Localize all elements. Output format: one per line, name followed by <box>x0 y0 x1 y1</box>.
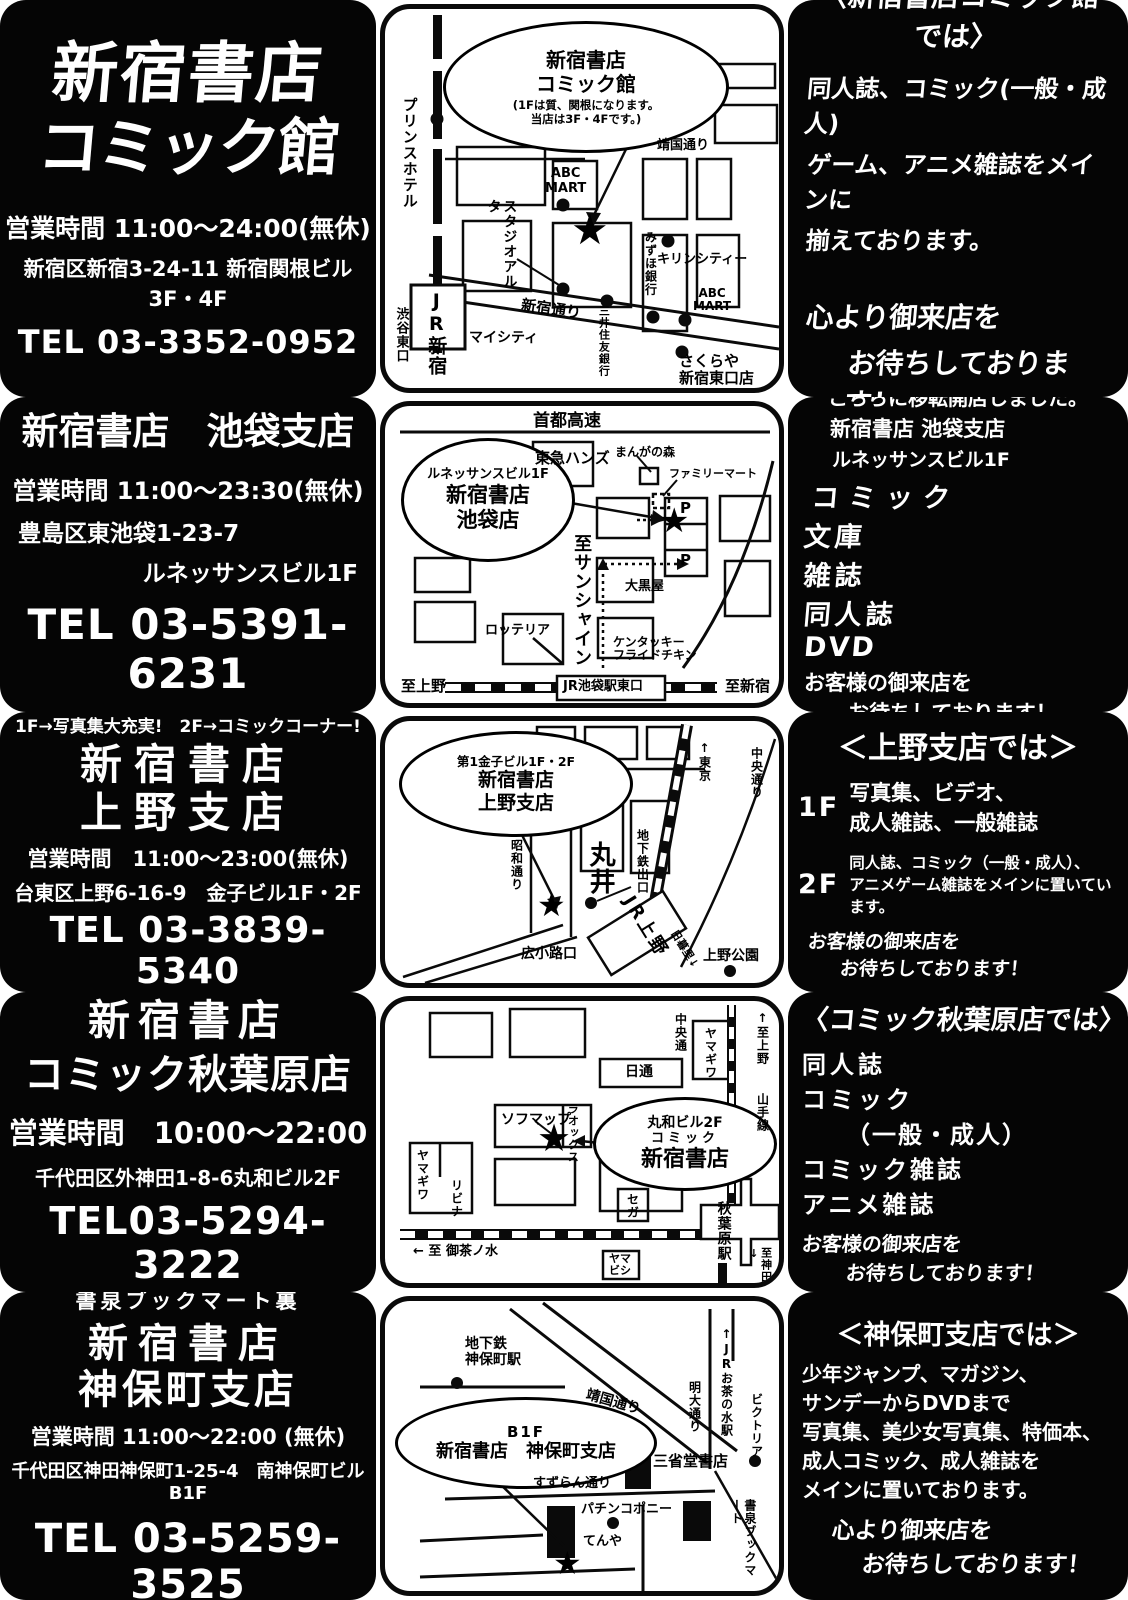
map-star-marker: ★ <box>659 504 689 538</box>
balloon-note1: (1Fは質、関根になります。 <box>513 99 659 113</box>
store-hours: 営業時間 11:00〜24:00(無休) <box>5 209 371 245</box>
map-balloon: 第1金子ビル1F・2F 新宿書店 上野支店 <box>399 731 633 837</box>
map-label-mycity: マイシティ <box>469 331 538 347</box>
balloon-store-name: 新宿書店 <box>446 483 530 508</box>
info-body-line: メインに置いております。 <box>802 1474 1039 1503</box>
store-title-line2: コミック館 <box>35 112 341 183</box>
info-floor1-label: 1F <box>798 792 839 823</box>
map-label-to-ochanomizu: ← 至 御茶ノ水 <box>413 1245 498 1260</box>
info-item: コミック <box>802 476 961 515</box>
info-body-line: アニメ雑誌 <box>802 1185 937 1220</box>
store-tel: TEL 03-5391-6231 <box>0 600 376 698</box>
map-label-jinbocho-subway-station: 地下鉄 神保町駅 <box>465 1337 521 1368</box>
store-title-line2: 神保町支店 <box>78 1367 298 1413</box>
map-label-kfc: ケンタッキー フライドチキン <box>613 636 697 663</box>
store-title-line1: 新宿書店 <box>88 1321 288 1367</box>
map-label-meidai-dori: 明大通り <box>687 1381 700 1433</box>
store-address2: ルネッサンスビル1F <box>143 554 376 588</box>
map-label-to-kanda: 至神田↓ <box>747 1247 772 1283</box>
balloon-store-name: 新宿書店 神保町支店 <box>436 1441 616 1463</box>
info-intro-line2: 新宿書店 池袋支店 <box>804 413 1005 443</box>
store-panel-comic-kan: 新宿書店 コミック館 営業時間 11:00〜24:00(無休) 新宿区新宿3-2… <box>0 0 376 397</box>
info-closing-line2: お待ちしております！ <box>801 1257 1046 1286</box>
map-jinbocho: 地下鉄 神保町駅 靖国通り B1F 新宿書店 神保町支店 すずらん通り パチンコ… <box>380 1296 784 1596</box>
info-panel-ikebukuro: こちらに移転開店しました。 新宿書店 池袋支店 ルネッサンスビル1F コミック … <box>788 397 1128 712</box>
store-hours: 営業時間 11:00〜23:00(無休) <box>28 843 349 873</box>
store-tel: TEL 03-5259-3525 <box>0 1516 376 1600</box>
map-ueno: 第1金子ビル1F・2F 新宿書店 上野支店 昭和通り 丸井 地下鉄出口 ↑東京 … <box>380 716 784 988</box>
store-topline: 1F→写真集大充実! 2F→コミックコーナー! <box>15 712 361 737</box>
map-label-studio-alta: スタジオアルタ <box>485 199 516 291</box>
store-panel-ikebukuro: 新宿書店 池袋支店 営業時間 11:00〜23:30(無休) 豊島区東池袋1-2… <box>0 397 376 712</box>
map-label-sanseido-books: 三省堂書店 <box>653 1453 728 1470</box>
store-title-line1: 新宿書店 <box>49 36 328 112</box>
info-panel-comic-kan: 〈新宿書店コミック館では〉 同人誌、コミック(一般・成人) ゲーム、アニメ雑誌を… <box>788 0 1128 397</box>
store-title-line1: 新宿書店 池袋支店 <box>22 411 355 454</box>
map-akihabara: 中央通 ヤマギワ ↑至上野 山手線 日通 ソフマップ ラオックス 丸和ビル2F … <box>380 996 784 1288</box>
map-label-ueno-park: 上野公園 <box>703 949 759 965</box>
map-column: 新宿書店 コミック館 (1Fは質、関根になります。 当店は3F・4Fです。) プ… <box>376 0 788 1600</box>
map-label-to-tokyo: ↑東京 <box>697 741 710 782</box>
info-body-line: 同人誌、コミック(一般・成人) <box>803 69 1113 139</box>
store-panel-jinbocho: 書泉ブックマート裏 新宿書店 神保町支店 営業時間 11:00〜22:00 (無… <box>0 1292 376 1600</box>
map-label-to-sunshine: 至サンシャイン <box>571 534 591 667</box>
map-label-yamabishi: ヤマ ビシ <box>609 1253 631 1278</box>
balloon-store-name2: コミック館 <box>536 72 636 96</box>
info-floor2-line1: 同人誌、コミック（一般・成人）、 <box>849 851 1118 873</box>
balloon-store-name: 新宿書店 <box>641 1147 729 1173</box>
map-label-yamanote-line: 山手線 <box>755 1093 768 1132</box>
map-balloon: 新宿書店 コミック館 (1Fは質、関根になります。 当店は3F・4Fです。) <box>443 21 729 153</box>
map-label-marui: 丸井 <box>585 841 614 895</box>
info-floor2-label: 2F <box>798 869 839 900</box>
map-label-akihabara-station: 秋葉原駅 <box>715 1201 731 1261</box>
balloon-building: ルネッサンスビル1F <box>427 467 549 483</box>
map-star-marker: ★ <box>571 209 609 251</box>
map-label-mizuho-bank: みずほ銀行 <box>643 231 656 296</box>
map-label-shuto-expressway: 首都高速 <box>533 412 601 431</box>
info-floor1-line2: 成人雑誌、一般雑誌 <box>849 807 1038 837</box>
info-body-line: ゲーム、アニメ雑誌をメインに <box>803 145 1113 215</box>
map-balloon: 丸和ビル2F コミック 新宿書店 <box>593 1097 777 1191</box>
map-ikebukuro: 首都高速 東急ハンズ まんがの森 ファミリーマート P P ルネッサンスビル1F… <box>380 401 784 708</box>
map-label-familymart: ファミリーマート <box>669 468 757 480</box>
balloon-branch: 上野支店 <box>478 792 554 815</box>
store-title-line2: コミック秋葉原店 <box>24 1052 352 1098</box>
map-label-prince-hotel: プリンスホテル <box>401 97 418 209</box>
store-tel: TEL 03-3352-0952 <box>18 323 358 361</box>
store-title-line1: 新宿書店 <box>80 741 296 789</box>
map-label-yasukuni-dori: 靖国通り <box>657 139 709 154</box>
balloon-branch: 池袋店 <box>457 508 520 533</box>
map-label-yamagiwa-1: ヤマギワ <box>703 1027 716 1079</box>
store-address: 新宿区新宿3-24-11 新宿関根ビル3F・4F <box>0 253 376 313</box>
map-shinjuku: 新宿書店 コミック館 (1Fは質、関根になります。 当店は3F・4Fです。) プ… <box>380 4 784 393</box>
map-label-jr-ochanomizu-station: ↑JRお茶の水駅 <box>719 1327 732 1437</box>
info-item: 雑誌 <box>802 554 867 593</box>
info-closing-line1: お客様の御来店を <box>797 927 961 954</box>
map-star-marker: ★ <box>553 1547 582 1579</box>
map-label-daikokuya: 大黒屋 <box>625 580 664 595</box>
map-label-kirin-city: キリンシティー <box>657 253 747 268</box>
info-body-line: コミック <box>802 1080 914 1115</box>
info-intro-line3: ルネッサンスビル1F <box>804 445 1010 472</box>
balloon-comic: コミック <box>651 1131 719 1147</box>
store-hours: 営業時間 11:00〜23:30(無休) <box>12 471 363 506</box>
ad-page: 新宿書店 コミック館 営業時間 11:00〜24:00(無休) 新宿区新宿3-2… <box>0 0 1128 1600</box>
info-floor1-line1: 写真集、ビデオ、 <box>849 777 1038 807</box>
store-title-line1: 新宿書店 <box>88 997 288 1045</box>
map-label-yamagiwa-2: ヤマギワ <box>415 1149 428 1201</box>
map-label-hirokoji-exit: 広小路口 <box>521 947 577 963</box>
info-item: 同人誌 <box>802 593 898 632</box>
store-address: 台東区上野6-16-9 金子ビル1F・2F <box>14 877 361 906</box>
info-body-line: 揃えております。 <box>804 221 995 256</box>
map-label-to-shinjuku: 至新宿 <box>725 678 770 695</box>
info-body-line: 写真集、美少女写真集、特価本、 <box>802 1416 1102 1445</box>
info-closing-line1: 心より御来店を <box>804 296 1003 336</box>
map-label-subway-exit: 地下鉄出口 <box>635 829 648 894</box>
info-heading: 〈新宿書店コミック館では〉 <box>803 0 1114 55</box>
info-body-line: コミック雑誌 <box>802 1150 964 1185</box>
map-label-jr-ikebukuro-station: JR池袋駅東口 <box>563 680 643 695</box>
map-label-pachinko-pony: パチンコポニー <box>581 1503 672 1518</box>
map-label-sega: セガ <box>625 1193 638 1219</box>
balloon-store-name: 新宿書店 <box>546 48 626 72</box>
store-column: 新宿書店 コミック館 営業時間 11:00〜24:00(無休) 新宿区新宿3-2… <box>0 0 376 1600</box>
map-label-livina: リビナ <box>449 1179 462 1218</box>
map-label-jr-shinjuku: JR新宿 <box>425 290 446 376</box>
map-label-abc-mart-1: ABC MART <box>545 167 586 196</box>
store-address: 千代田区神田神保町1-25-4 南神保町ビルB1F <box>0 1457 376 1504</box>
info-body-line: 同人誌 <box>802 1045 886 1080</box>
map-star-marker: ★ <box>537 1119 571 1157</box>
store-panel-ueno: 1F→写真集大充実! 2F→コミックコーナー! 新宿書店 上野支店 営業時間 1… <box>0 712 376 992</box>
map-label-sakuraya: さくらや 新宿東口店 <box>679 353 754 387</box>
balloon-note2: 当店は3F・4Fです。) <box>531 113 642 127</box>
map-label-to-ueno: 至上野 <box>401 678 446 695</box>
store-tel: TEL03-5294-3222 <box>0 1199 376 1287</box>
map-label-mitsui-sumitomo-bank: 三井住友銀行 <box>597 305 609 393</box>
map-label-parking-bottom: P <box>680 552 691 569</box>
balloon-floor: B1F <box>507 1423 545 1441</box>
map-label-lotteria: ロッテリア <box>485 624 550 639</box>
map-label-abc-mart-2: ABC MART <box>693 287 731 314</box>
info-panel-akihabara: 〈コミック秋葉原店では〉 同人誌 コミック （一般・成人） コミック雑誌 アニメ… <box>788 992 1128 1292</box>
info-intro-line1: こちらに移転開店しました。 <box>828 397 1088 411</box>
info-body-line: サンデーからDVDまで <box>802 1387 1011 1416</box>
info-body-line: （一般・成人） <box>802 1115 1028 1150</box>
store-tel: TEL 03-3839-5340 <box>0 910 376 992</box>
store-address: 千代田区外神田1-8-6丸和ビル2F <box>35 1162 341 1191</box>
info-item: DVD <box>803 632 877 663</box>
info-body-line: 成人コミック、成人雑誌を <box>802 1445 1040 1474</box>
map-label-suzuran-dori: すずらん通り <box>533 1477 611 1492</box>
map-label-tenya: てんや <box>583 1535 622 1550</box>
info-heading: ＜神保町支店では＞ <box>837 1313 1080 1352</box>
info-item: 文庫 <box>802 515 867 554</box>
info-closing-line1: お客様の御来店を <box>801 1228 964 1257</box>
map-label-shibuya-east-exit: 渋谷東口 <box>393 307 408 363</box>
info-heading: ＜上野支店では＞ <box>838 723 1078 767</box>
map-label-chuo-dori: 中央通 <box>673 1013 686 1052</box>
balloon-building: 第1金子ビル1F・2F <box>457 754 575 769</box>
info-closing-line2: お待ちしております！ <box>804 697 1057 712</box>
balloon-store-name: 新宿書店 <box>478 769 554 792</box>
info-floor2-line2: アニメゲーム雑誌をメインに置いています。 <box>849 873 1118 917</box>
store-hours: 営業時間 10:00〜22:00 <box>9 1110 368 1152</box>
map-star-marker: ★ <box>537 889 566 921</box>
info-closing-line2: お待ちしております！ <box>797 954 1030 981</box>
store-title-line2: 上野支店 <box>80 789 296 837</box>
info-panel-jinbocho: ＜神保町支店では＞ 少年ジャンプ、マガジン、 サンデーからDVDまで 写真集、美… <box>788 1292 1128 1600</box>
balloon-building: 丸和ビル2F <box>647 1115 722 1132</box>
info-closing-line1: 心より御来店を <box>801 1511 995 1545</box>
store-topline: 書泉ブックマート裏 <box>76 1292 301 1315</box>
map-label-showa-dori: 昭和通り <box>509 839 522 891</box>
map-label-to-ueno: ↑至上野 <box>755 1011 768 1065</box>
map-label-victoria: ビクトリア <box>749 1393 762 1458</box>
info-panel-ueno: ＜上野支店では＞ 1F 写真集、ビデオ、 成人雑誌、一般雑誌 2F 同人誌、コミ… <box>788 712 1128 992</box>
info-body-line: 少年ジャンプ、マガジン、 <box>802 1358 1039 1387</box>
info-closing-line2: お待ちしております！ <box>801 1545 1093 1579</box>
map-label-tokyu-hands: 東急ハンズ <box>535 450 610 467</box>
map-label-shosen-book-mart: 書泉ブックマート <box>729 1499 756 1589</box>
store-hours: 営業時間 11:00〜22:00 (無休) <box>31 1421 346 1451</box>
map-label-chuo-dori: 中央通り <box>749 747 762 799</box>
info-closing-line1: お客様の御来店を <box>804 667 972 697</box>
store-address: 豊島区東池袋1-23-7 <box>0 514 239 548</box>
info-heading: 〈コミック秋葉原店では〉 <box>800 998 1115 1037</box>
info-closing-line2: お待ちしております！ <box>803 342 1114 397</box>
store-panel-akihabara: 新宿書店 コミック秋葉原店 営業時間 10:00〜22:00 千代田区外神田1-… <box>0 992 376 1292</box>
map-label-nittsu: 日通 <box>625 1065 653 1081</box>
map-label-manga-no-mori: まんがの森 <box>615 446 675 459</box>
info-column: 〈新宿書店コミック館では〉 同人誌、コミック(一般・成人) ゲーム、アニメ雑誌を… <box>788 0 1128 1600</box>
